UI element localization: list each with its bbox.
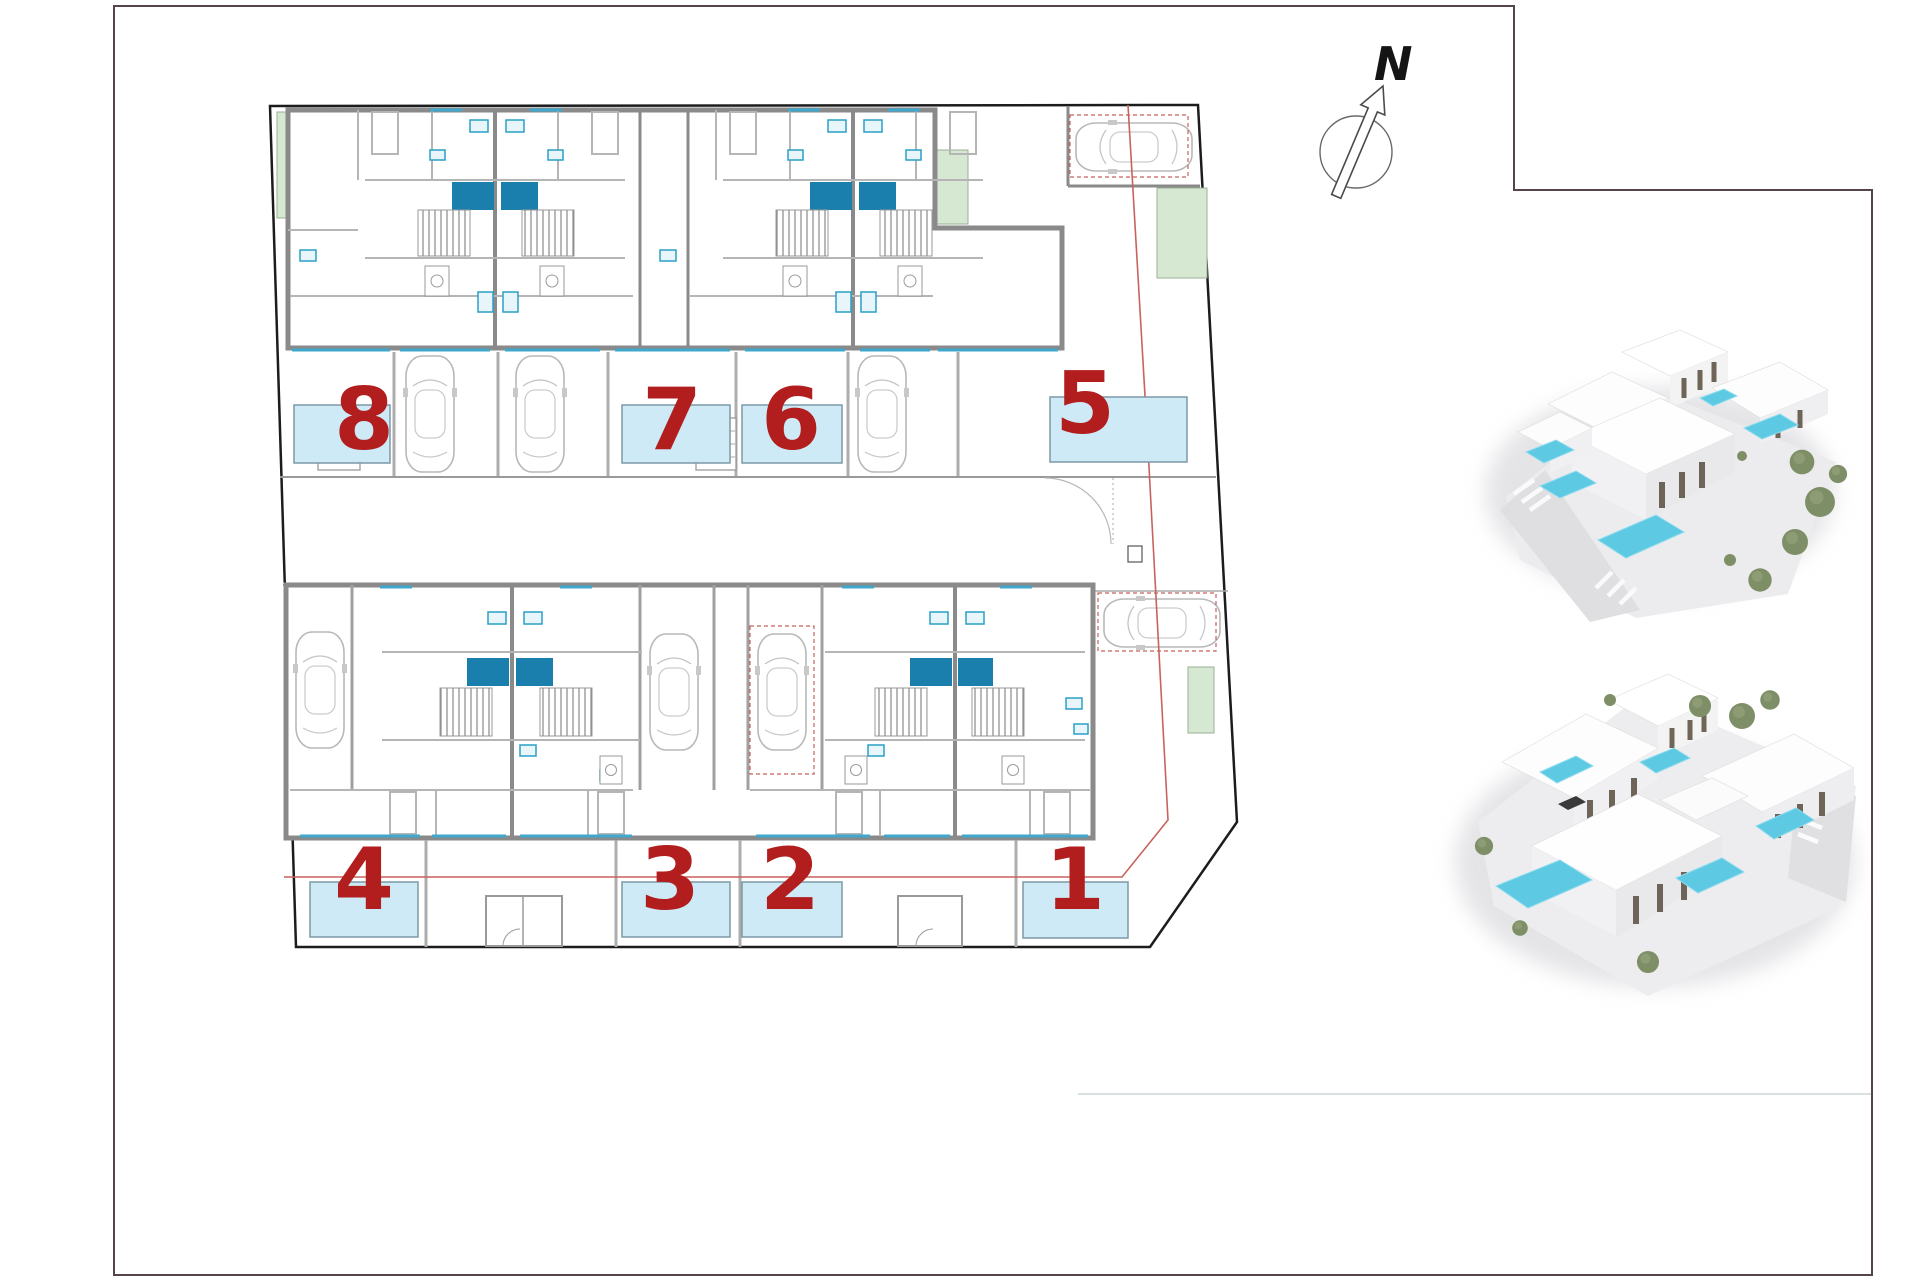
car-icon xyxy=(855,356,909,472)
car-icon xyxy=(293,632,347,748)
unit-number-8: 8 xyxy=(334,370,394,470)
garden-area xyxy=(936,150,968,224)
car-icon xyxy=(755,634,809,750)
north-indicator: N xyxy=(1320,37,1413,198)
unit-number-6: 6 xyxy=(761,370,821,470)
aerial-render-top xyxy=(1485,330,1847,622)
garden-area xyxy=(1157,188,1207,278)
site-plan-canvas: N xyxy=(0,0,1920,1280)
unit-number-7: 7 xyxy=(642,370,702,470)
architectural-site-plan-page: { "north_indicator": { "label": "N" }, "… xyxy=(0,0,1920,1280)
unit-number-3: 3 xyxy=(640,830,700,930)
gate-post xyxy=(1128,546,1142,562)
unit-number-5: 5 xyxy=(1055,354,1115,454)
car-icon xyxy=(1104,596,1220,650)
car-icon xyxy=(647,634,701,750)
unit-number-1: 1 xyxy=(1045,830,1105,930)
floor-plan: 87654321 xyxy=(270,105,1237,947)
car-icon xyxy=(513,356,567,472)
unit-number-2: 2 xyxy=(760,830,820,930)
garden-area xyxy=(1188,667,1214,733)
car-icon xyxy=(1076,120,1192,174)
car-icon xyxy=(403,356,457,472)
unit-number-4: 4 xyxy=(334,830,394,930)
north-label: N xyxy=(1374,37,1413,91)
aerial-render-bottom xyxy=(1455,674,1856,996)
